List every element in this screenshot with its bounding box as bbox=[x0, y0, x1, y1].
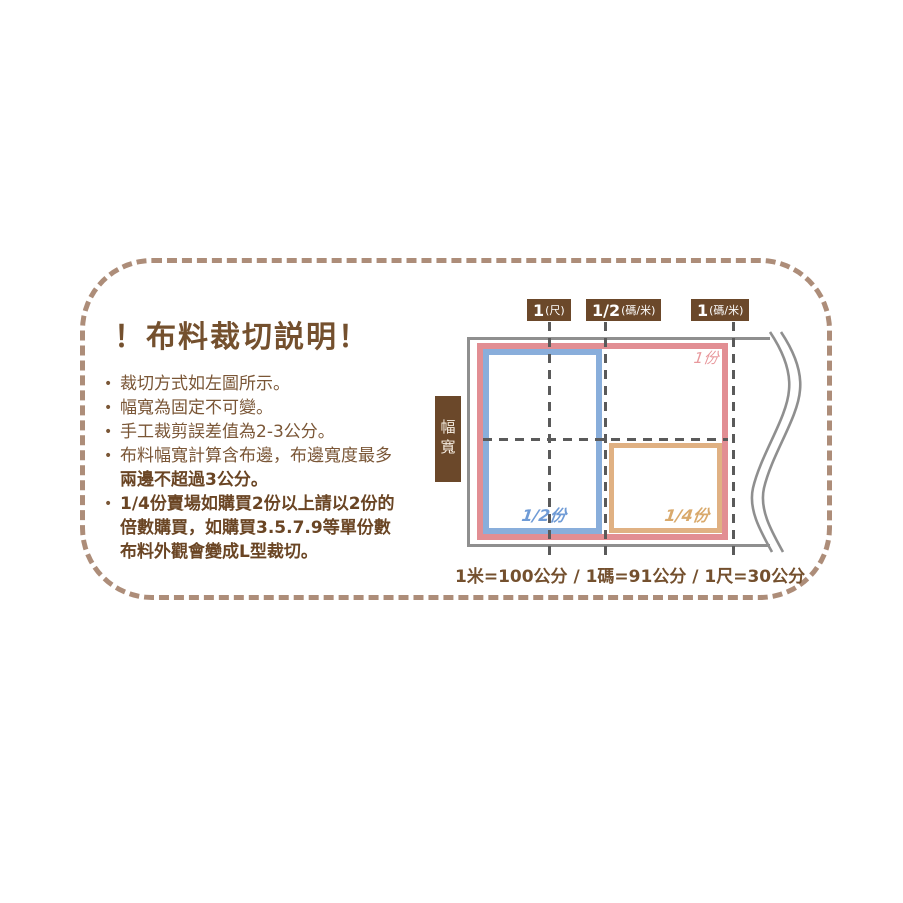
measure-value: 1 bbox=[533, 301, 544, 320]
bullet-item: • 布料幅寬計算含布邊，布邊寬度最多 兩邊不超過3公分。 bbox=[104, 444, 444, 492]
page-title: ！布料裁切説明！ bbox=[114, 312, 370, 356]
one-unit-label: 1份 bbox=[693, 347, 720, 368]
fabric-continuation-wave-icon bbox=[745, 326, 815, 558]
cut-line-half-width bbox=[483, 438, 728, 441]
bullet-text: 布料幅寬計算含布邊，布邊寬度最多 bbox=[120, 444, 392, 468]
half-unit-label: 1/2份 bbox=[520, 502, 567, 526]
page-canvas: ！布料裁切説明！ • 裁切方式如左圖所示。 • 幅寬為固定不可變。 • 手工裁剪… bbox=[0, 0, 903, 903]
bullet-text: 裁切方式如左圖所示。 bbox=[120, 372, 290, 396]
bullet-item: • 幅寬為固定不可變。 bbox=[104, 396, 444, 420]
fabric-width-label: 幅寬 bbox=[435, 396, 461, 482]
bullet-text: 幅寬為固定不可變。 bbox=[120, 396, 273, 420]
measure-unit: (碼/米) bbox=[709, 302, 743, 318]
bullet-list: • 裁切方式如左圖所示。 • 幅寬為固定不可變。 • 手工裁剪誤差值為2-3公分… bbox=[104, 372, 444, 564]
bullet-item: • 1/4份賣場如購買2份以上請以2份的 倍數購買，如購買3.5.7.9等單份數… bbox=[104, 492, 444, 564]
bullet-text: 1/4份賣場如購買2份以上請以2份的 bbox=[120, 492, 395, 516]
measure-label-1-chi: 1 (尺) bbox=[527, 299, 571, 321]
measure-value: 1 bbox=[697, 301, 708, 320]
bullet-item: • 裁切方式如左圖所示。 bbox=[104, 372, 444, 396]
measure-label-half-yard: 1/2 (碼/米) bbox=[586, 299, 661, 321]
measure-unit: (碼/米) bbox=[621, 302, 655, 318]
measure-label-1-yard: 1 (碼/米) bbox=[691, 299, 749, 321]
bullet-dot: • bbox=[104, 372, 120, 396]
unit-conversion-note: 1米=100公分 / 1碼=91公分 / 1尺=30公分 bbox=[455, 562, 795, 587]
bullet-item: • 手工裁剪誤差值為2-3公分。 bbox=[104, 420, 444, 444]
bullet-dot: • bbox=[104, 420, 120, 444]
bullet-text: 手工裁剪誤差值為2-3公分。 bbox=[120, 420, 335, 444]
cut-line-1-yard bbox=[732, 322, 735, 558]
bullet-dot: • bbox=[104, 492, 120, 516]
quarter-unit-label: 1/4份 bbox=[663, 502, 710, 526]
bullet-text: 兩邊不超過3公分。 bbox=[120, 468, 392, 492]
measure-value: 1/2 bbox=[592, 301, 620, 320]
bullet-dot: • bbox=[104, 444, 120, 468]
bullet-dot: • bbox=[104, 396, 120, 420]
bullet-text: 倍數購買，如購買3.5.7.9等單份數 bbox=[120, 516, 395, 540]
measure-unit: (尺) bbox=[545, 302, 565, 318]
bullet-text: 布料外觀會變成L型裁切。 bbox=[120, 540, 395, 564]
